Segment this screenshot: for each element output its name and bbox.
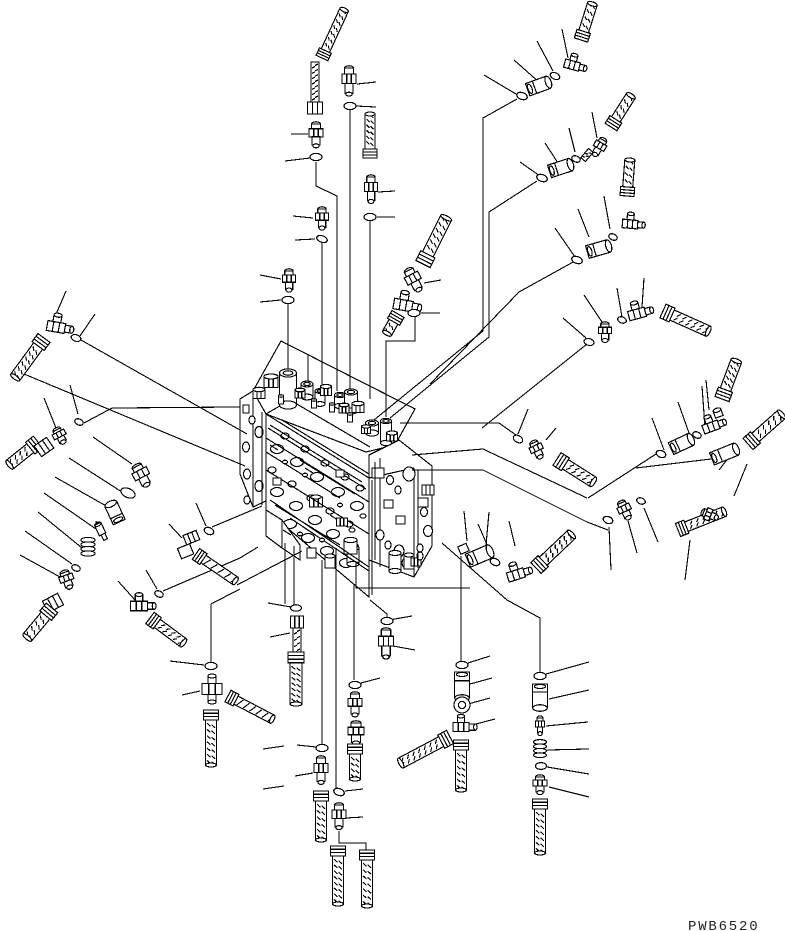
svg-text:PWB6520: PWB6520 — [688, 919, 759, 931]
